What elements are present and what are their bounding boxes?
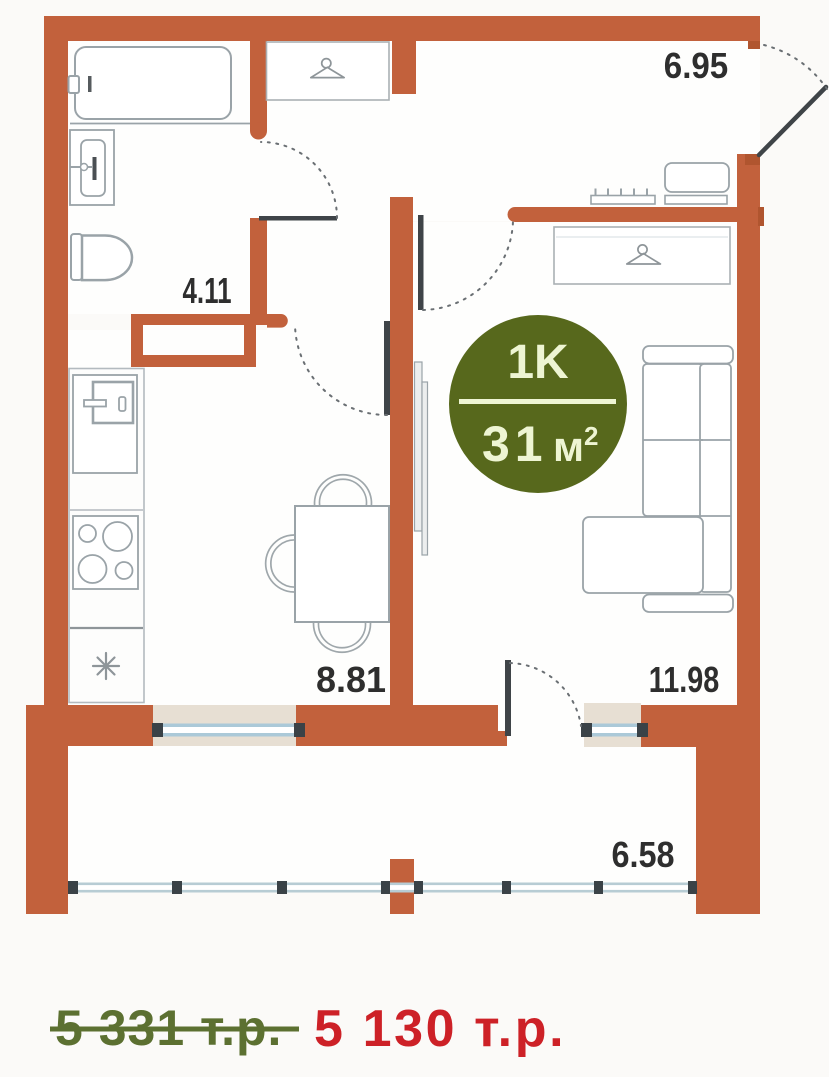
svg-text:6.58: 6.58 xyxy=(611,835,674,875)
svg-text:11.98: 11.98 xyxy=(649,659,719,700)
svg-text:2: 2 xyxy=(584,421,598,451)
svg-text:8.81: 8.81 xyxy=(316,659,386,700)
svg-text:31: 31 xyxy=(482,416,548,472)
svg-text:6.95: 6.95 xyxy=(664,47,728,87)
svg-text:5 130 т.р.: 5 130 т.р. xyxy=(314,1000,566,1058)
svg-text:м: м xyxy=(553,423,584,470)
svg-text:4.11: 4.11 xyxy=(182,271,231,311)
svg-text:1K: 1K xyxy=(507,336,569,389)
